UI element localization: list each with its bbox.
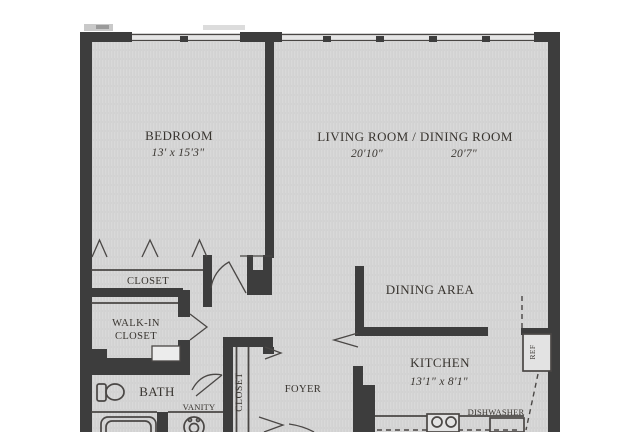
wall-walkin-south-a	[83, 349, 107, 369]
wall-bedroom-living	[265, 42, 274, 258]
dining-area-label: DINING AREA	[386, 282, 475, 297]
wall-foyer-closet-north	[223, 337, 273, 347]
wall-bath-divider	[157, 412, 168, 432]
kitchen-dimensions: 13'1" x 8'1"	[410, 376, 468, 388]
wall-exterior-right	[548, 32, 560, 432]
window-band-living	[280, 33, 537, 42]
wall-closet-south	[80, 288, 183, 297]
wall-dining-horizontal	[355, 327, 488, 336]
walk-in-closet-label-line2: CLOSET	[115, 331, 157, 342]
wall-dining-vertical	[355, 266, 364, 330]
foyer-closet-label: CLOSET	[235, 372, 245, 412]
floor-plan: BEDROOM 13' x 15'3" LIVING ROOM / DINING…	[0, 0, 640, 432]
window-mullion	[180, 36, 188, 42]
window-mullion	[376, 36, 384, 42]
vanity-label: VANITY	[183, 402, 216, 412]
wall-foyer-closet-west	[223, 337, 233, 432]
wall-kitchen-west-a	[353, 366, 363, 432]
walkin-shelf	[152, 346, 180, 361]
window-mullion	[323, 36, 331, 42]
wall-top-segment-b	[240, 32, 282, 42]
bath-label: BATH	[139, 384, 175, 399]
dishwasher-label: DISHWASHER	[468, 407, 525, 417]
dining-dimension: 20'7"	[451, 148, 477, 160]
bedroom-dimensions: 13' x 15'3"	[152, 147, 205, 159]
bedroom-label: BEDROOM	[145, 128, 213, 143]
living-dimension: 20'10"	[351, 148, 383, 160]
foyer-label: FOYER	[285, 384, 321, 395]
bedroom-closet-label: CLOSET	[127, 276, 169, 287]
window-mullion	[482, 36, 490, 42]
living-dining-label: LIVING ROOM / DINING ROOM	[317, 129, 513, 144]
refrigerator-label: REF	[528, 345, 537, 360]
window-mullion	[429, 36, 437, 42]
wall-bath-north	[88, 367, 190, 375]
stove-icon	[427, 414, 459, 432]
walk-in-closet-label-line1: WALK-IN	[112, 318, 160, 329]
kitchen-label: KITCHEN	[410, 355, 470, 370]
wall-top-segment-a	[80, 32, 132, 42]
wall-hall-upper	[178, 290, 190, 317]
wall-kitchen-west-b	[363, 385, 375, 432]
wall-closet-stub	[203, 255, 212, 307]
window-band-bedroom	[130, 33, 242, 42]
